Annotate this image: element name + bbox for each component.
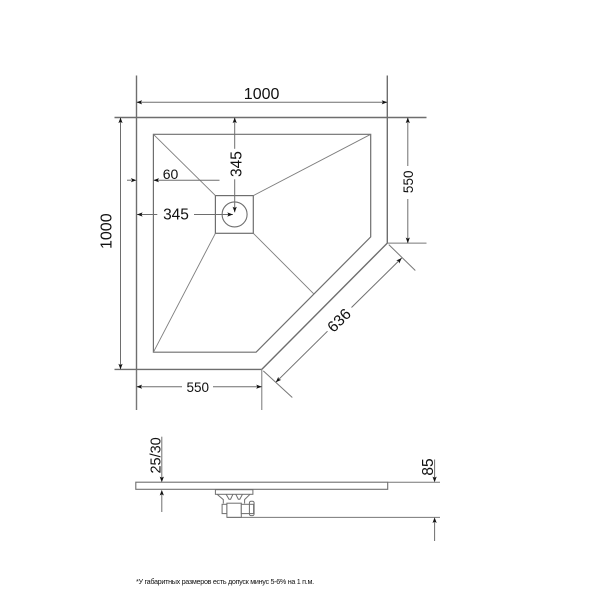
svg-text:636: 636 <box>324 306 354 336</box>
svg-text:*У габаритных размеров есть до: *У габаритных размеров есть допуск минус… <box>136 577 314 586</box>
svg-text:345: 345 <box>228 151 245 177</box>
svg-text:345: 345 <box>163 207 189 224</box>
svg-text:550: 550 <box>401 171 416 194</box>
svg-text:25/30: 25/30 <box>149 437 165 473</box>
svg-text:1000: 1000 <box>99 213 116 249</box>
svg-text:550: 550 <box>187 380 210 395</box>
svg-text:85: 85 <box>420 458 437 475</box>
svg-text:60: 60 <box>163 166 179 182</box>
svg-text:1000: 1000 <box>244 86 280 103</box>
